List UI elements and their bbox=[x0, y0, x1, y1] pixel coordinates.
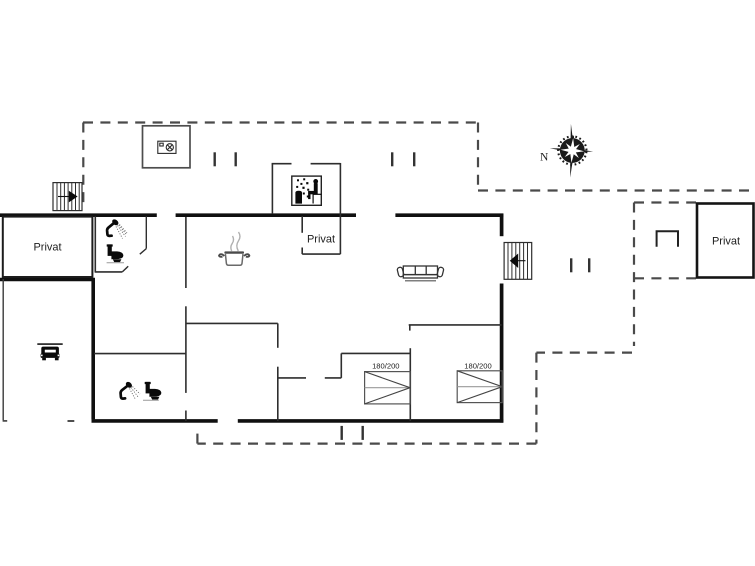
svg-text:180/200: 180/200 bbox=[372, 362, 399, 371]
svg-text:Privat: Privat bbox=[33, 242, 61, 254]
svg-text:Privat: Privat bbox=[712, 236, 740, 248]
svg-text:180/200: 180/200 bbox=[464, 362, 491, 371]
svg-text:N: N bbox=[540, 152, 549, 164]
svg-text:Privat: Privat bbox=[307, 234, 335, 246]
